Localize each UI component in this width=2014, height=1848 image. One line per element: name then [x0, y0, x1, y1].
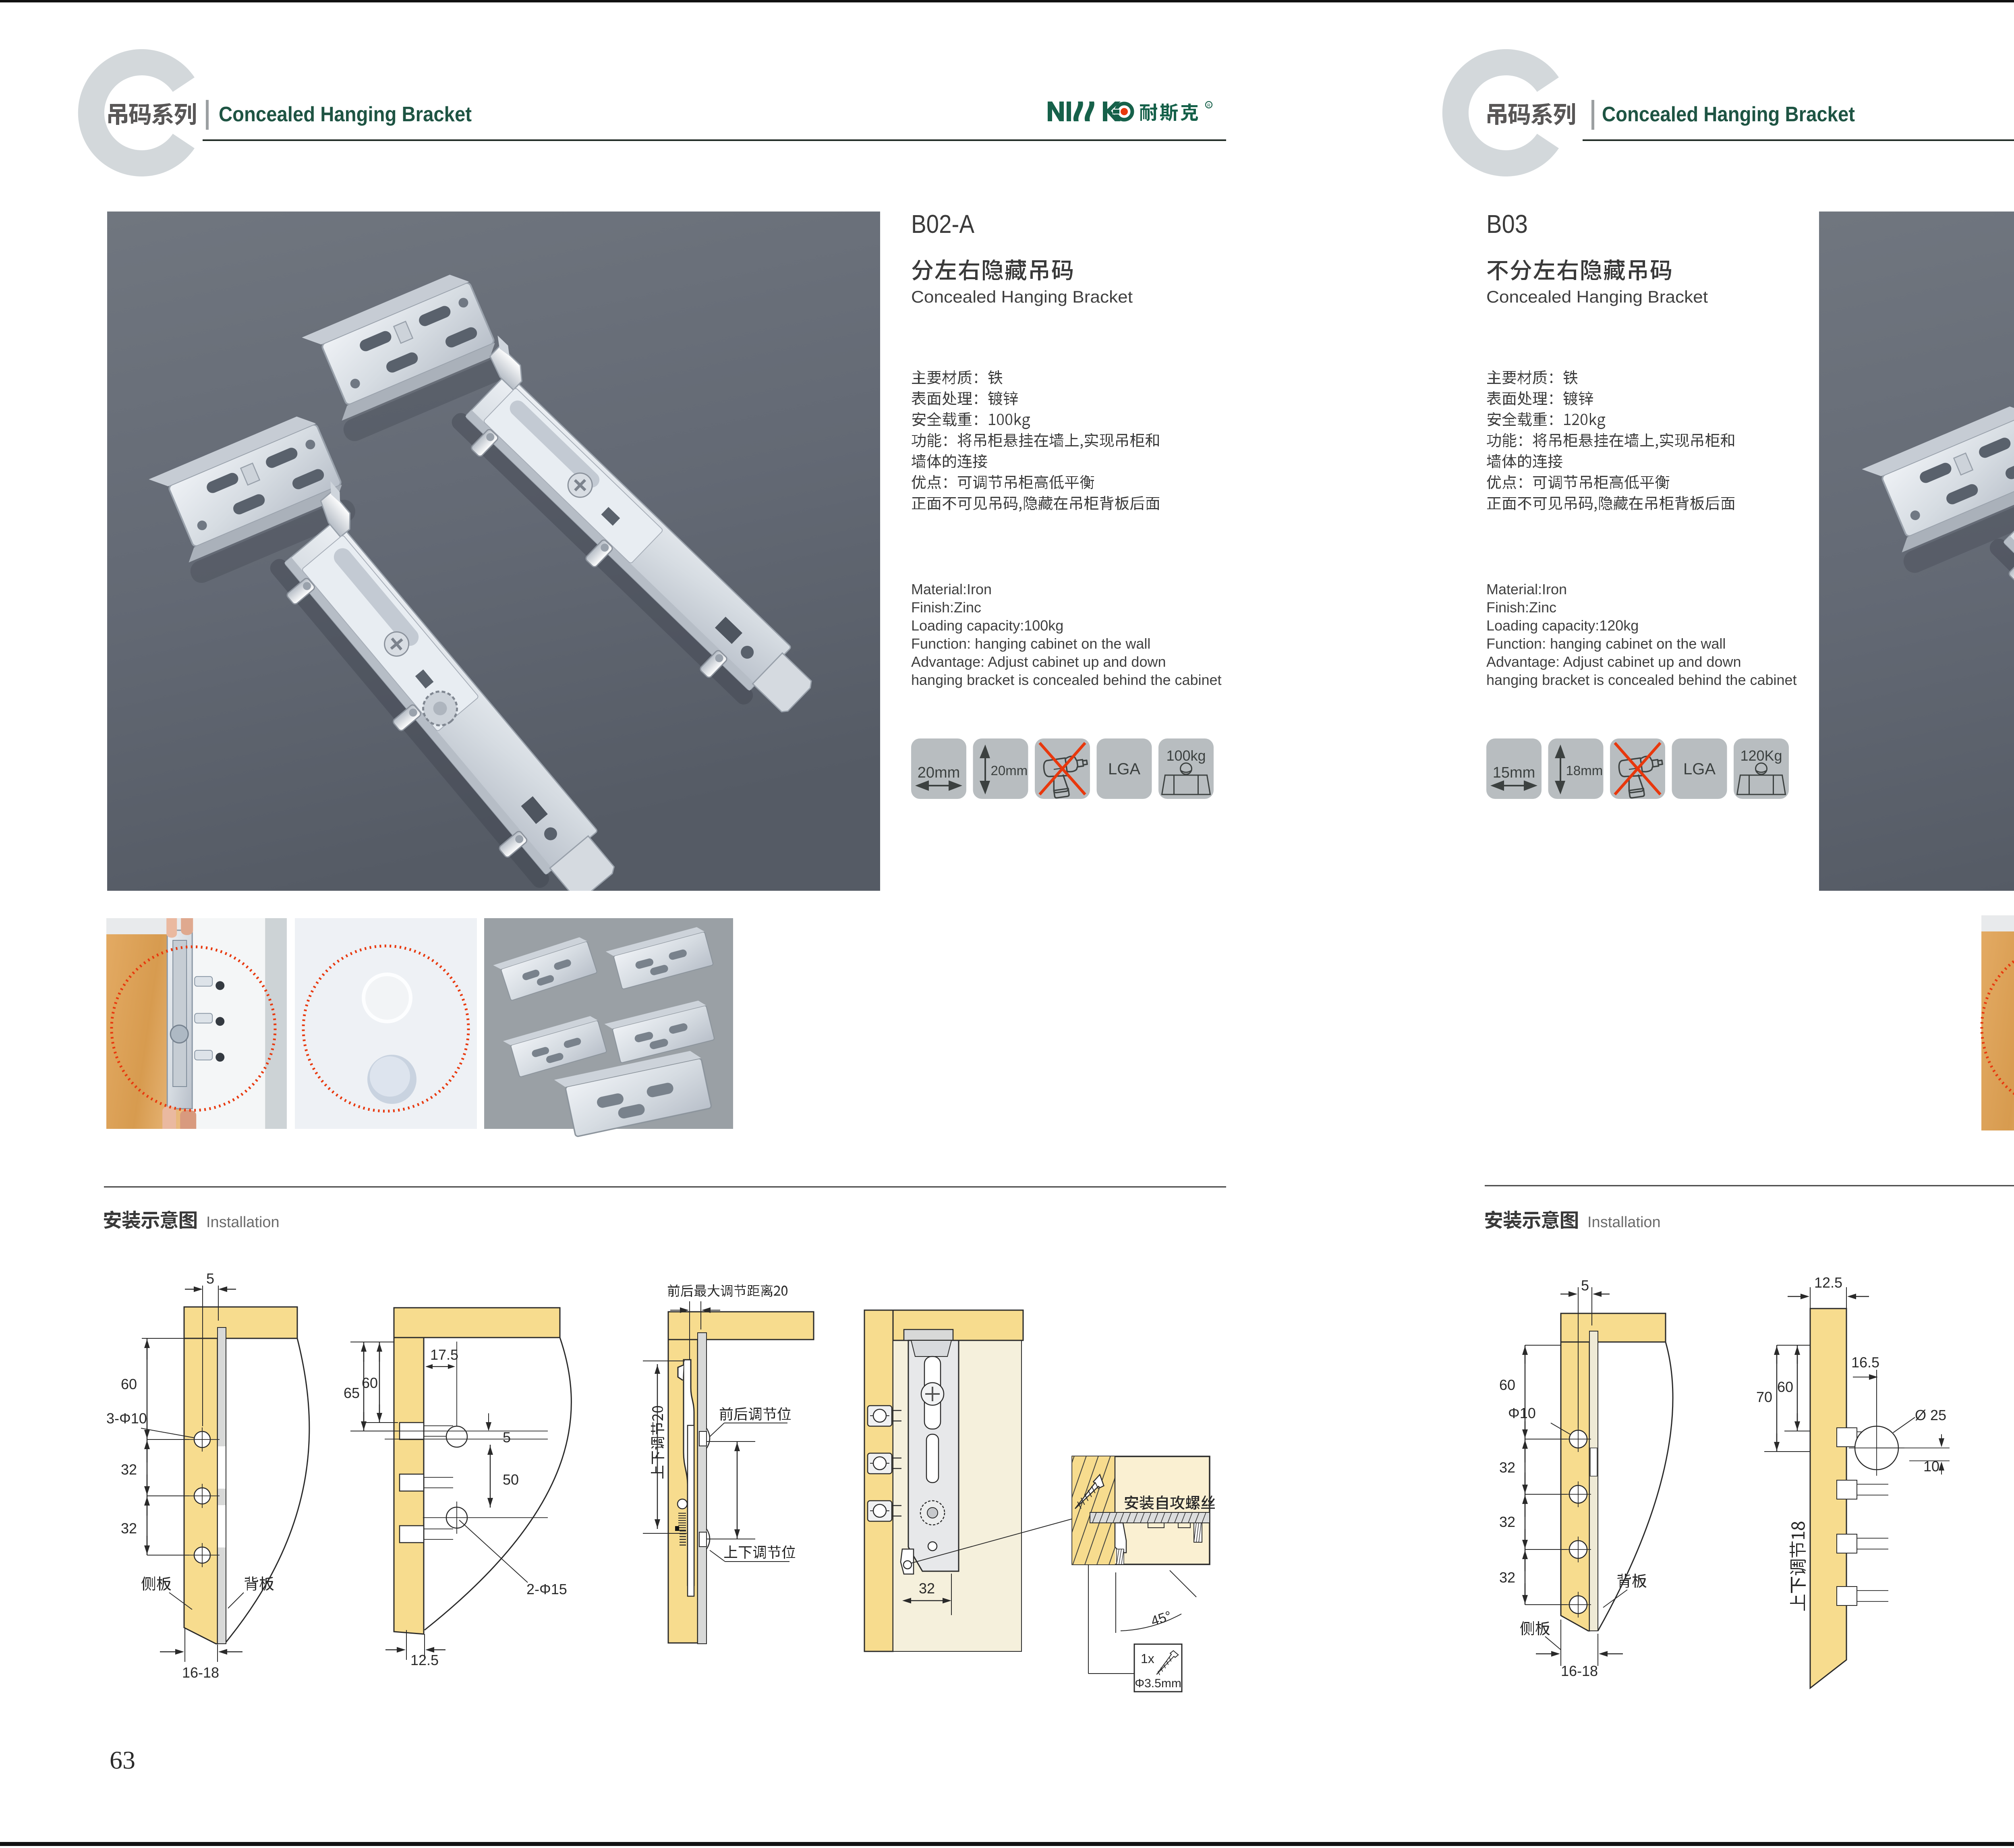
svg-text:Material:Iron: Material:Iron — [1486, 581, 1567, 597]
svg-text:32: 32 — [919, 1580, 935, 1597]
svg-text:Concealed Hanging Bracket: Concealed Hanging Bracket — [219, 103, 472, 126]
svg-text:hanging bracket is concealed b: hanging bracket is concealed behind the … — [1486, 672, 1797, 688]
svg-text:Function: hanging cabinet on t: Function: hanging cabinet on the wall — [1486, 635, 1726, 652]
svg-text:17.5: 17.5 — [430, 1346, 458, 1363]
svg-text:16-18: 16-18 — [1561, 1663, 1598, 1679]
svg-text:20mm: 20mm — [918, 764, 960, 781]
svg-text:18mm: 18mm — [1566, 763, 1603, 778]
svg-text:Material:Iron: Material:Iron — [911, 581, 992, 597]
svg-text:32: 32 — [1499, 1569, 1515, 1586]
svg-text:Concealed Hanging Bracket: Concealed Hanging Bracket — [911, 287, 1133, 306]
svg-text:Loading capacity:120kg: Loading capacity:120kg — [1486, 617, 1639, 634]
svg-text:16-18: 16-18 — [182, 1664, 219, 1681]
svg-text:Installation: Installation — [206, 1214, 280, 1231]
svg-text:Advantage: Adjust cabinet up a: Advantage: Adjust cabinet up and down — [1486, 653, 1741, 670]
svg-text:20mm: 20mm — [991, 763, 1028, 778]
svg-text:R: R — [1207, 103, 1210, 108]
svg-text:Concealed Hanging Bracket: Concealed Hanging Bracket — [1486, 287, 1708, 306]
svg-text:Ø 25: Ø 25 — [1915, 1407, 1946, 1423]
svg-text:B02-A: B02-A — [911, 209, 974, 239]
svg-text:10: 10 — [1923, 1458, 1939, 1475]
svg-text:Function: hanging cabinet on t: Function: hanging cabinet on the wall — [911, 635, 1150, 652]
svg-text:50: 50 — [503, 1471, 519, 1488]
svg-text:Installation: Installation — [1587, 1214, 1661, 1231]
svg-text:5: 5 — [1581, 1277, 1589, 1294]
svg-text:hanging bracket is concealed b: hanging bracket is concealed behind the … — [911, 672, 1222, 688]
svg-text:100kg: 100kg — [1166, 747, 1206, 764]
svg-text:32: 32 — [121, 1461, 137, 1478]
svg-text:Φ3.5mm: Φ3.5mm — [1135, 1677, 1181, 1690]
svg-text:Loading capacity:100kg: Loading capacity:100kg — [911, 617, 1063, 634]
svg-text:Finish:Zinc: Finish:Zinc — [1486, 599, 1556, 616]
svg-text:Finish:Zinc: Finish:Zinc — [911, 599, 981, 616]
svg-text:45°: 45° — [1149, 1608, 1174, 1629]
svg-text:12.5: 12.5 — [1814, 1274, 1842, 1291]
svg-text:2-Φ15: 2-Φ15 — [526, 1581, 567, 1597]
svg-text:32: 32 — [121, 1520, 137, 1537]
svg-text:16.5: 16.5 — [1851, 1354, 1879, 1371]
svg-text:12.5: 12.5 — [410, 1652, 439, 1668]
svg-text:60: 60 — [1777, 1379, 1793, 1395]
svg-text:60: 60 — [1499, 1377, 1515, 1393]
svg-text:Advantage: Adjust cabinet up a: Advantage: Adjust cabinet up and down — [911, 653, 1166, 670]
svg-text:5: 5 — [503, 1429, 511, 1446]
svg-text:LGA: LGA — [1108, 760, 1140, 778]
svg-text:60: 60 — [121, 1376, 137, 1392]
svg-text:32: 32 — [1499, 1514, 1515, 1530]
svg-text:Φ10: Φ10 — [1508, 1405, 1536, 1421]
svg-text:63: 63 — [110, 1746, 135, 1774]
svg-text:B03: B03 — [1486, 209, 1528, 239]
svg-text:1x: 1x — [1141, 1651, 1154, 1666]
svg-text:LGA: LGA — [1683, 760, 1716, 778]
svg-text:120Kg: 120Kg — [1740, 747, 1782, 764]
svg-text:Concealed Hanging Bracket: Concealed Hanging Bracket — [1602, 103, 1855, 126]
svg-text:32: 32 — [1499, 1459, 1515, 1476]
svg-text:5: 5 — [206, 1270, 214, 1287]
svg-text:70: 70 — [1756, 1389, 1772, 1405]
svg-text:60: 60 — [362, 1375, 378, 1391]
svg-text:65: 65 — [344, 1385, 360, 1401]
svg-text:15mm: 15mm — [1493, 764, 1535, 781]
svg-text:3-Φ10: 3-Φ10 — [106, 1410, 147, 1427]
